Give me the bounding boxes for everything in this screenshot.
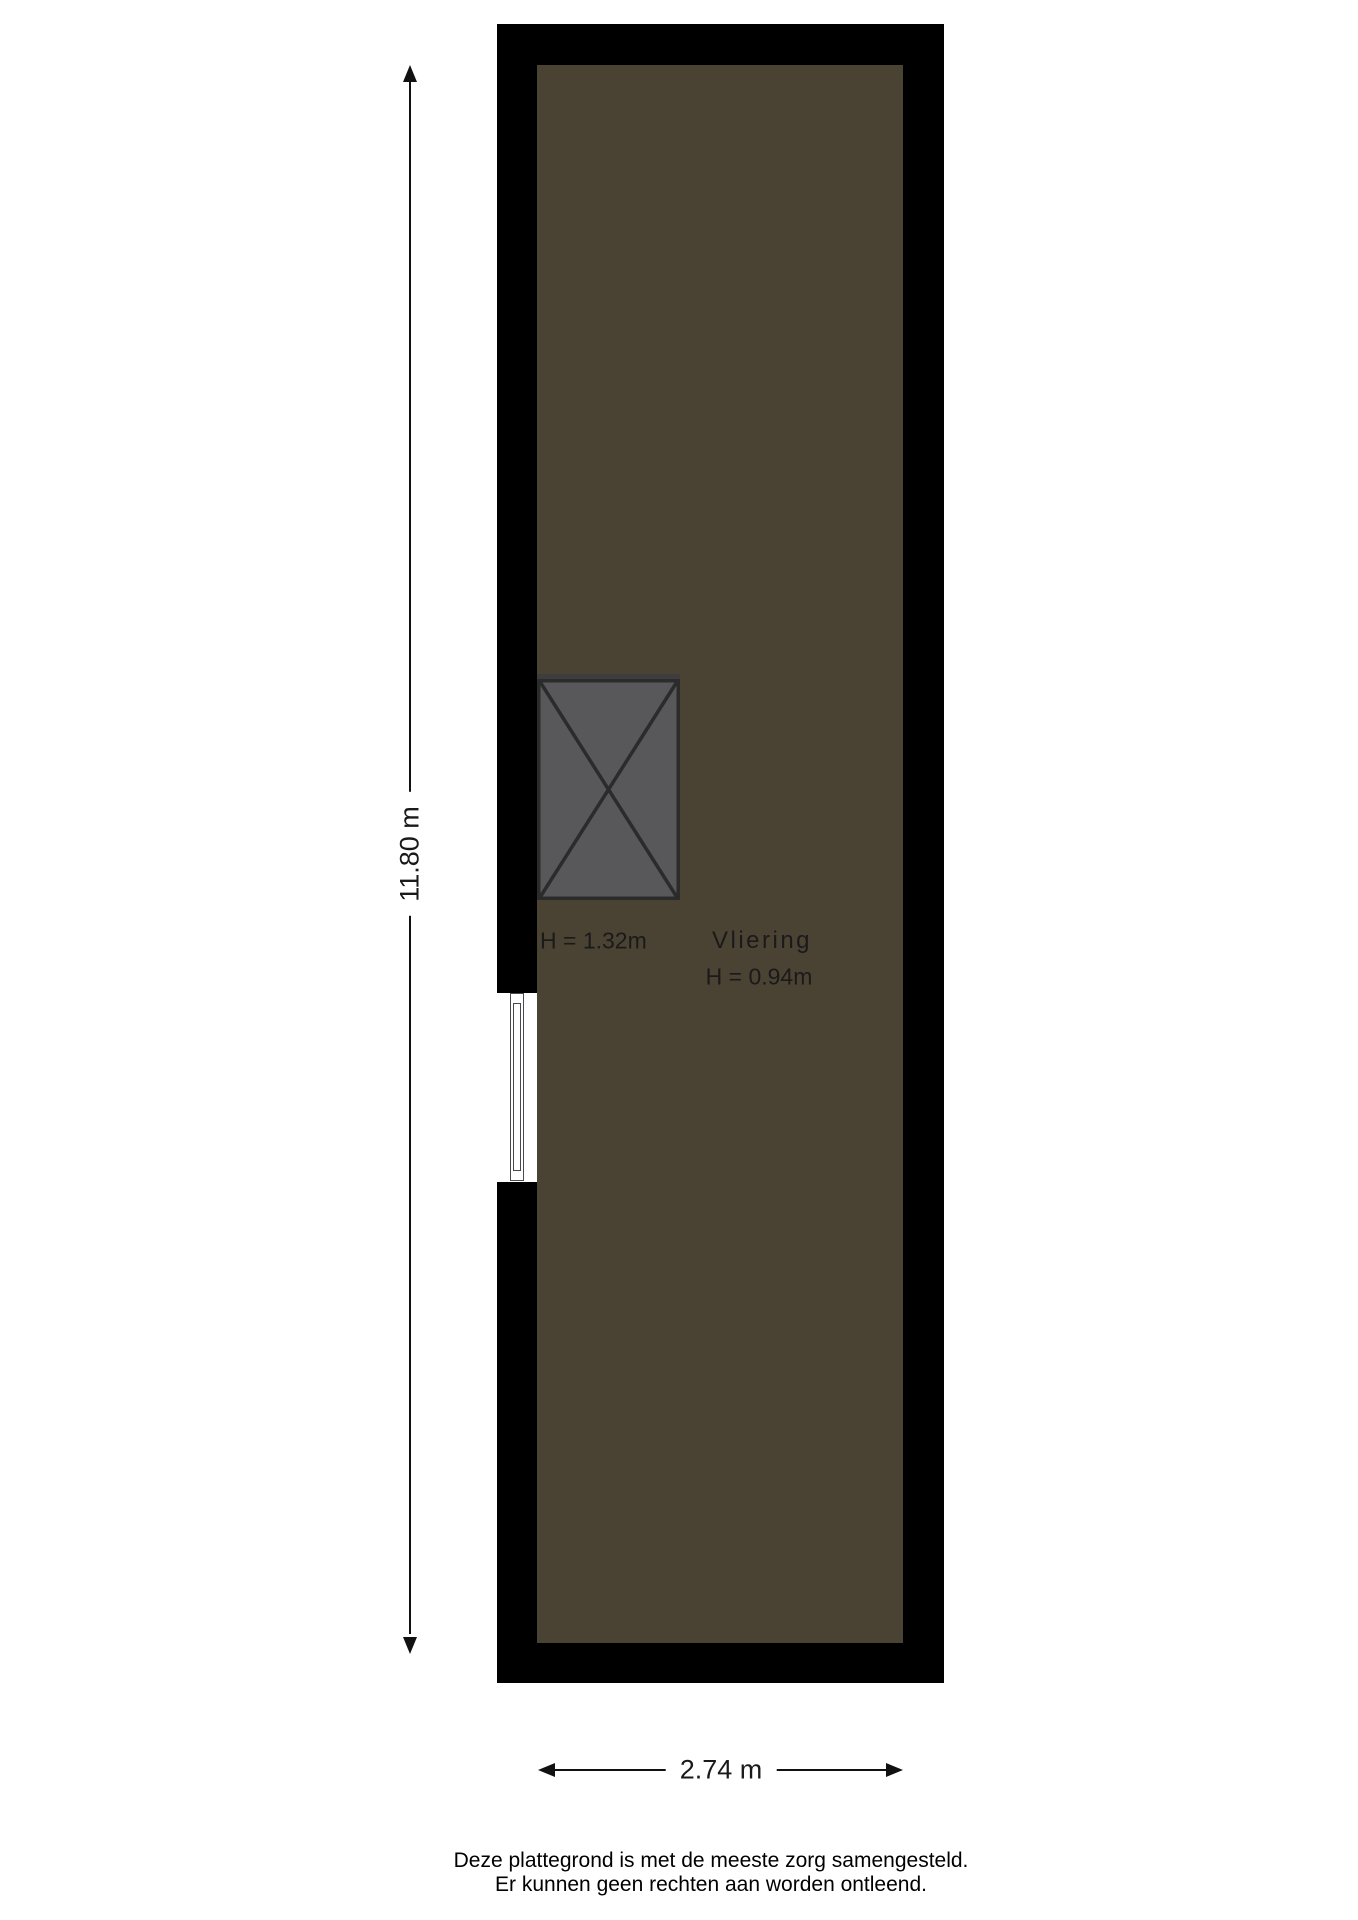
disclaimer-footer: Deze plattegrond is met de meeste zorg s… [454, 1849, 969, 1896]
hatch-x-icon [537, 674, 680, 900]
arrow-right-icon [886, 1763, 903, 1777]
hatch-box [537, 674, 680, 900]
arrow-up-icon [403, 65, 417, 82]
horizontal-dimension-label: 2.74 m [666, 1751, 777, 1790]
disclaimer-line-2: Er kunnen geen rechten aan worden ontlee… [454, 1873, 969, 1897]
window-glass [513, 1003, 521, 1171]
window-frame [510, 993, 524, 1181]
room-name-label: Vliering [712, 927, 812, 955]
vertical-dimension-label: 11.80 m [391, 792, 430, 916]
arrow-left-icon [538, 1763, 555, 1777]
hatch-height-label: H = 1.32m [540, 928, 647, 955]
arrow-down-icon [403, 1637, 417, 1654]
room-height-label: H = 0.94m [706, 964, 813, 991]
disclaimer-line-1: Deze plattegrond is met de meeste zorg s… [454, 1849, 969, 1873]
